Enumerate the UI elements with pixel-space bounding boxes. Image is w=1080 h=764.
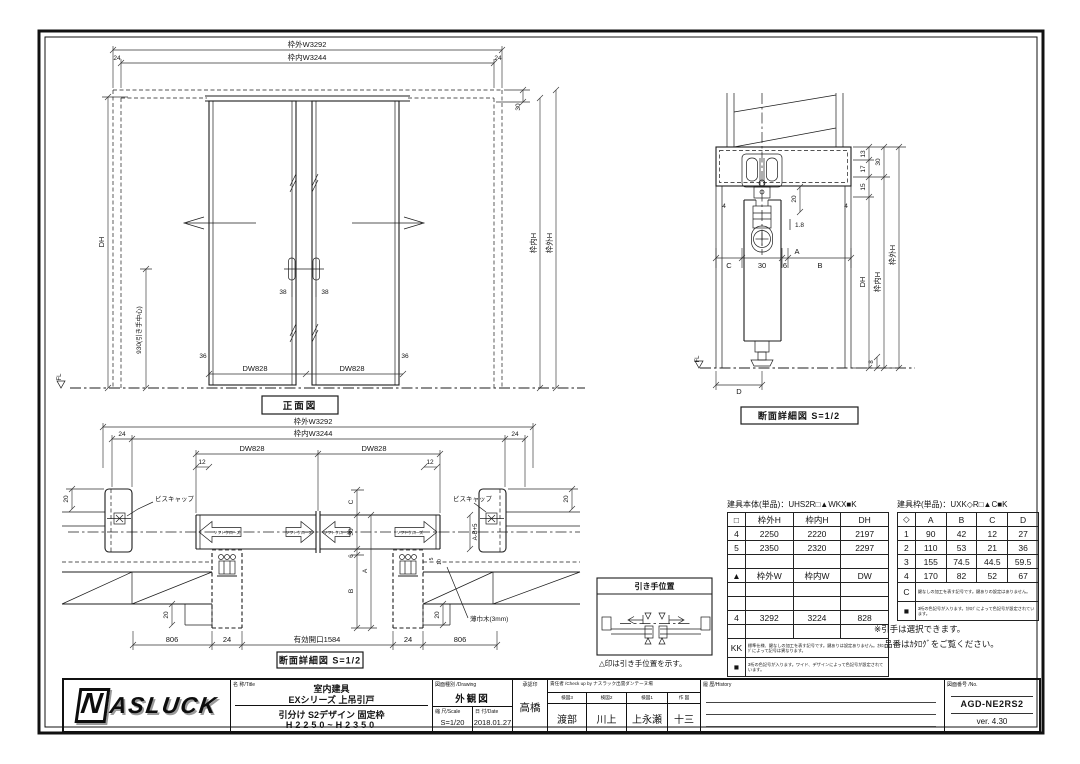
check1-col: 検図1 上永瀬 bbox=[626, 692, 667, 731]
fl-label: FL bbox=[57, 373, 63, 381]
dim-label: C bbox=[348, 499, 355, 504]
check3-col: 検図3 渡部 bbox=[548, 692, 586, 731]
handle-box-title: 引き手位置 bbox=[635, 581, 675, 591]
dim-label: 30 bbox=[758, 261, 766, 270]
drafter-label: 作 図 bbox=[668, 693, 700, 704]
note-row: ■ 3桁の色記号が入ります。ｶﾀﾛｸﾞによって色記号が設定されています。 bbox=[898, 602, 1039, 621]
dim-label: 20 bbox=[63, 495, 70, 503]
history-line bbox=[706, 702, 936, 703]
leader-line bbox=[474, 503, 486, 512]
dim-label: 24 bbox=[113, 55, 121, 62]
dim-label: 枠内H bbox=[872, 272, 882, 292]
dim-label: 24 bbox=[223, 635, 231, 644]
divider bbox=[951, 713, 1033, 714]
check2-col: 検図2 川上 bbox=[586, 692, 626, 731]
divider bbox=[951, 696, 1033, 697]
note-row: ■ 3桁の色記号が入ります。ワイド、デザインによって色記号が設定されています。 bbox=[728, 658, 889, 677]
soft-close-label: ソフトクローズ bbox=[397, 530, 424, 535]
drafter-name: 十三 bbox=[668, 704, 700, 726]
door-frame-table: 建具枠(単品)：UXK◇R□▲C■K ◇ABCD 190421227 21105… bbox=[897, 499, 1039, 621]
dim-label: DW828 bbox=[242, 364, 267, 373]
front-elevation-view: 枠外W3292 枠内W3244 24 24 30 DH 930(引き手中心) F… bbox=[57, 39, 585, 414]
drawing-type: 外観図 bbox=[433, 691, 512, 705]
dim-label: 5 bbox=[429, 557, 435, 560]
view-caption: 正面図 bbox=[283, 401, 318, 412]
hanger-bolt-detail bbox=[752, 206, 773, 252]
divider bbox=[235, 705, 428, 706]
dim-label: 有効開口1584 bbox=[294, 634, 341, 644]
dim-label: 36 bbox=[199, 353, 207, 360]
history-label: 履 歴/History bbox=[703, 681, 731, 688]
check1-label: 検図1 bbox=[627, 693, 667, 704]
dim-label: 20 bbox=[163, 611, 170, 619]
footnote-line: 品番はｶﾀﾛｸﾞをご覧ください。 bbox=[884, 637, 999, 652]
dim-label: 806 bbox=[454, 635, 467, 644]
table-row: 4170825267 bbox=[898, 569, 1039, 583]
skirting-label: 薄巾木(3mm) bbox=[470, 614, 508, 623]
handle-position-diagram bbox=[602, 613, 710, 644]
drawing-number-cell: 図面番号 /No. AGD-NE2RS2 ver. 4.30 bbox=[944, 680, 1039, 731]
dim-label: 10 bbox=[437, 559, 443, 565]
footnote-line: ※引手は選択できます。 bbox=[874, 622, 999, 637]
table-row: 5235023202297 bbox=[728, 541, 889, 555]
logo-wordmark: ASLUCK bbox=[108, 692, 220, 719]
drafter-col: 作 図 十三 bbox=[667, 692, 700, 731]
table-row: 315574.544.559.5 bbox=[898, 555, 1039, 569]
empty-row bbox=[728, 597, 889, 611]
dim-label: 13 bbox=[860, 150, 867, 158]
dim-label: 15 bbox=[860, 183, 867, 191]
leader-line bbox=[127, 502, 153, 516]
empty-row bbox=[728, 625, 889, 639]
dim-label: D bbox=[736, 387, 742, 396]
approval-label: 承認印 bbox=[513, 681, 547, 688]
history-line bbox=[706, 726, 936, 727]
scale-cell: 縮 尺/Scale S=1/20 bbox=[433, 706, 472, 731]
empty-row bbox=[728, 555, 889, 569]
logo-n-mark: N bbox=[74, 688, 110, 723]
door-handles bbox=[284, 258, 324, 297]
door-body-table: 建具本体(単品)：UHS2R□▲WKX■K □枠外H枠内HDH 42250222… bbox=[727, 499, 889, 677]
dim-label: DW828 bbox=[239, 444, 264, 453]
approval-cell: 承認印 高橋 bbox=[512, 680, 547, 731]
dim-label: 30 bbox=[515, 103, 522, 111]
check2-name: 川上 bbox=[587, 704, 626, 726]
dim-label: 806 bbox=[166, 635, 179, 644]
dim-label: 20 bbox=[563, 495, 570, 503]
table-header-row: ▲枠外W枠内WDW bbox=[728, 569, 889, 583]
scale-label: 縮 尺/Scale bbox=[435, 708, 460, 715]
dim-label: A-B+5 bbox=[473, 523, 479, 541]
handle-footnotes: ※引手は選択できます。 品番はｶﾀﾛｸﾞをご覧ください。 bbox=[874, 622, 999, 653]
approval-name: 高橋 bbox=[513, 700, 547, 715]
dim-label: 8 bbox=[869, 360, 875, 364]
drawing-label: 図面種別 /Drawing bbox=[435, 681, 476, 688]
right-guide-pocket bbox=[393, 550, 423, 628]
dim-label: B bbox=[817, 261, 822, 270]
check2-label: 検図2 bbox=[587, 693, 626, 704]
table-row: 2110532136 bbox=[898, 541, 1039, 555]
title-block: N ASLUCK 名 称/Title 室内建具 EXシリーズ 上吊引戸 引分け … bbox=[62, 678, 1041, 733]
table-title: 建具本体(単品)：UHS2R□▲WKX■K bbox=[727, 499, 889, 510]
drawing-sheet: 枠外W3292 枠内W3244 24 24 30 DH 930(引き手中心) F… bbox=[0, 0, 1080, 764]
nasluck-logo: N ASLUCK bbox=[64, 680, 230, 731]
dim-label: 6 bbox=[348, 554, 355, 558]
dim-label: 12 bbox=[426, 459, 434, 466]
section-detail-view: 4 4 20 1.8 C 30 6 B A 13 17 15 30 DH 枠内H… bbox=[695, 93, 915, 424]
table-header-row: □枠外H枠内HDH bbox=[728, 513, 889, 527]
dim-label: 枠外H bbox=[887, 245, 897, 265]
handle-position-box: 引き手位置 △印は引き手位置を示す。 bbox=[597, 578, 712, 668]
table-row: 4225022202197 bbox=[728, 527, 889, 541]
check3-name: 渡部 bbox=[548, 704, 586, 726]
dim-label: 30 bbox=[875, 158, 882, 166]
screw-cap-label: ビスキャップ bbox=[155, 494, 195, 503]
dim-label: 30 bbox=[348, 528, 355, 536]
table-title: 建具枠(単品)：UXK◇R□▲C■K bbox=[897, 499, 1039, 510]
dim-label: 20 bbox=[434, 611, 441, 619]
logo-cell: N ASLUCK bbox=[64, 680, 230, 731]
dim-label: DW828 bbox=[339, 364, 364, 373]
soft-close-label: ソフトクローズ bbox=[214, 530, 241, 535]
view-caption: 断面詳細図 S=1/2 bbox=[279, 655, 361, 666]
dim-label: 24 bbox=[404, 635, 412, 644]
dim-label: 枠外H bbox=[544, 233, 554, 253]
dim-label: 枠外W3292 bbox=[294, 416, 333, 426]
scale-value: S=1/20 bbox=[433, 718, 472, 727]
floor-guide-detail bbox=[751, 341, 773, 366]
table-row: 432923224828 bbox=[728, 611, 889, 625]
table-header-row: ◇ABCD bbox=[898, 513, 1039, 527]
dim-label: DH bbox=[97, 237, 106, 248]
dim-label: DH bbox=[858, 277, 867, 288]
title-cell: 名 称/Title 室内建具 EXシリーズ 上吊引戸 引分け S2デザイン 固定… bbox=[230, 680, 432, 731]
drawing-number: AGD-NE2RS2 bbox=[945, 699, 1039, 709]
history-cell: 履 歴/History bbox=[700, 680, 944, 731]
dim-label: 24 bbox=[118, 431, 126, 438]
dim-label: 24 bbox=[511, 431, 519, 438]
dim-label: 4 bbox=[844, 203, 848, 210]
note-row: C 鍵なしの加工を表す記号です。鍵ありの設定はありません。 bbox=[898, 583, 1039, 602]
table-row: 190421227 bbox=[898, 527, 1039, 541]
date-cell: 日 付/Date 2018.01.27 bbox=[472, 706, 512, 731]
dim-label: 4 bbox=[722, 203, 726, 210]
date-value: 2018.01.27 bbox=[473, 718, 512, 727]
check1-name: 上永瀬 bbox=[627, 704, 667, 726]
dim-label: A bbox=[362, 568, 369, 573]
dim-label: 930(引き手中心) bbox=[134, 306, 143, 354]
dim-label: 38 bbox=[279, 289, 287, 296]
note-row: KK 標準仕様、鍵なしの加工を表す記号です。鍵ありは設定ありません。ｶﾀﾛｸﾞに… bbox=[728, 639, 889, 658]
dim-label: 枠内W3244 bbox=[288, 52, 327, 62]
dim-label: 枠内H bbox=[528, 233, 538, 253]
fl-label: FL bbox=[695, 355, 701, 363]
dim-label: 38 bbox=[321, 289, 329, 296]
view-caption: 断面詳細図 S=1/2 bbox=[758, 410, 840, 421]
checkup-cell: 責任者 /Check up by ナスラック出雲ダンテーヌ場 検図3 渡部 検図… bbox=[547, 680, 700, 731]
soft-close-label: ソフトクローズ bbox=[324, 530, 351, 535]
empty-row bbox=[728, 583, 889, 597]
dim-label: 12 bbox=[198, 459, 206, 466]
handle-box-note: △印は引き手位置を示す。 bbox=[599, 658, 687, 668]
left-wall-structure bbox=[62, 562, 212, 625]
dim-label: A bbox=[794, 247, 799, 256]
number-label: 図面番号 /No. bbox=[947, 681, 978, 688]
dim-label: 17 bbox=[860, 165, 867, 173]
left-guide-pocket bbox=[212, 550, 242, 628]
history-line bbox=[706, 714, 936, 715]
screw-cap-label: ビスキャップ bbox=[453, 494, 493, 503]
check3-label: 検図3 bbox=[548, 693, 586, 704]
dim-label: 枠外W3292 bbox=[288, 39, 327, 49]
date-label: 日 付/Date bbox=[475, 708, 498, 715]
product-size-range: H2250~H2350 bbox=[231, 720, 432, 730]
soft-close-label: ソフトクローズ bbox=[286, 530, 313, 535]
dim-label: 20 bbox=[791, 195, 798, 203]
drawing-type-cell: 図面種別 /Drawing 外観図 縮 尺/Scale S=1/20 日 付/D… bbox=[432, 680, 512, 731]
dim-label: C bbox=[726, 261, 732, 270]
dim-label: 24 bbox=[494, 55, 502, 62]
dim-label: 6 bbox=[783, 261, 787, 270]
fl-marker bbox=[57, 381, 65, 388]
version: ver. 4.30 bbox=[945, 717, 1039, 726]
left-jamb bbox=[105, 489, 132, 552]
dim-label: B bbox=[348, 589, 355, 593]
plan-detail-view: ソフトクローズ ソフトクローズ ソフトクローズ ソフトクローズ bbox=[62, 416, 580, 668]
dim-label: 枠内W3244 bbox=[294, 428, 333, 438]
dim-label: 1.8 bbox=[795, 222, 804, 229]
checkup-header: 責任者 /Check up by ナスラック出雲ダンテーヌ場 bbox=[550, 681, 653, 687]
dim-label: DW828 bbox=[361, 444, 386, 453]
dim-label: 36 bbox=[401, 353, 409, 360]
slide-direction-arrows bbox=[184, 217, 424, 229]
